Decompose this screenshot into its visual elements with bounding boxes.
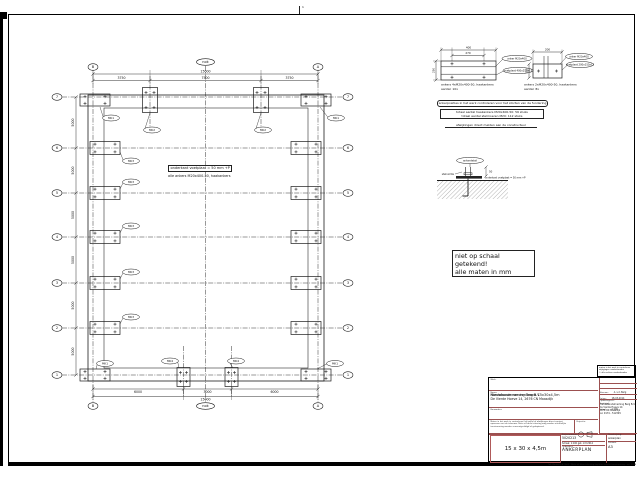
grid-bubble-label: 1 bbox=[56, 373, 58, 377]
grid-bubble-label: 3 bbox=[347, 281, 349, 285]
tb-format-cell: Omschrijving: ankerplan Formaat A3 bbox=[607, 434, 637, 463]
grid-bubble-label: 5 bbox=[347, 191, 349, 195]
tb-project-cell: Projectnummer: 5020213 Schaal: 1:100 get… bbox=[560, 434, 607, 463]
detail-plate bbox=[441, 61, 496, 80]
grid-bubble-label: 1 bbox=[347, 373, 349, 377]
building-inner-outline bbox=[104, 108, 308, 368]
grid-bubble-label: nok bbox=[202, 60, 209, 64]
grid-bubble-label: 2 bbox=[56, 326, 58, 330]
grid-bubble-label: 3 bbox=[56, 281, 58, 285]
tb-onderdeel-value: ANKERPLAN bbox=[562, 448, 605, 453]
detail-callout-label: anker M20x400 bbox=[507, 57, 527, 61]
tb-projection-label: Projectie: bbox=[577, 421, 597, 424]
tb-get-note: get. mrt 2014 bbox=[578, 442, 593, 445]
mark-callout-label: MK1 bbox=[102, 362, 108, 366]
dim-text: 270 bbox=[465, 51, 471, 55]
mark-callout-label: MK3 bbox=[128, 224, 134, 228]
mark-callout-label: MK4 bbox=[167, 359, 173, 363]
mark-callout-label: MK1 bbox=[108, 116, 114, 120]
callout-leader bbox=[317, 364, 328, 370]
ground-note: onderkant voetplaat = 50 mm +P bbox=[485, 176, 526, 179]
dim-text: 5000 bbox=[71, 256, 75, 264]
dim-text: 6000 bbox=[134, 390, 142, 394]
note-total-nuts: totaal aantal stelmoeren M20: 112 stuks bbox=[441, 114, 543, 118]
scale-note-1: niet op schaal getekend! bbox=[455, 252, 532, 268]
mark-callout-label: MK3 bbox=[128, 180, 134, 184]
tb-werk-row: Werk: Nieuwbouw van een loods 15x30x4,5m bbox=[489, 378, 598, 391]
tb-projection-box: Projectie: bbox=[574, 420, 598, 434]
dim-text: 200 bbox=[545, 48, 551, 52]
dim-text: 3750 bbox=[117, 76, 125, 80]
tb-size-box: 15 x 30 x 4,5m bbox=[490, 435, 561, 463]
mark-callout-label: MK3 bbox=[128, 315, 134, 319]
tb-formaat-value: A3 bbox=[608, 445, 636, 449]
tb-schaal-value: 1:100 bbox=[571, 442, 577, 445]
ground-hatch bbox=[437, 181, 508, 199]
tb-size-text: 15 x 30 x 4,5m bbox=[505, 446, 547, 452]
dim-text: 5000 bbox=[71, 166, 75, 174]
dim-text: 7500 bbox=[201, 76, 209, 80]
detail-callout-label: voetplaat 200x150x12 bbox=[566, 63, 595, 67]
dim-text: 3750 bbox=[285, 76, 293, 80]
detail-callout-label: anker M20x400 bbox=[569, 55, 589, 59]
title-block: Werk: Nieuwbouw van een loods 15x30x4,5m… bbox=[488, 377, 636, 462]
anchor-plate bbox=[301, 94, 331, 106]
dim-text: 5000 bbox=[71, 211, 75, 219]
tb-naam-row: Naam: Handelsonderneming Berg B.V. De Vi… bbox=[489, 391, 598, 408]
tb-divider bbox=[599, 378, 600, 434]
dim-text: 5000 bbox=[71, 347, 75, 355]
callout-leader bbox=[455, 172, 462, 174]
note-underlined: afwijkingen direct melden aan de constru… bbox=[445, 123, 537, 129]
dim-text: 6000 bbox=[270, 390, 278, 394]
mark-callout-label: MK2 bbox=[149, 128, 155, 132]
dim-text: 150 bbox=[524, 68, 528, 74]
mark-callout-label: MK2 bbox=[260, 128, 266, 132]
grid-bubble-label: 6 bbox=[56, 146, 58, 150]
titleblock-footer: Tek. Bureau v.d. Stelt · Niets uit deze … bbox=[546, 464, 636, 466]
grid-bubble-label: nok bbox=[202, 404, 209, 408]
dim-text: 5000 bbox=[71, 118, 75, 126]
mark-callout-label: MK3 bbox=[128, 270, 134, 274]
grid-bubble-label: 2 bbox=[347, 326, 349, 330]
scale-note-2: alle maten in mm bbox=[455, 268, 532, 276]
tb-bouwadres-label: Bouwadres: bbox=[491, 409, 597, 412]
dim-text: 50 bbox=[489, 170, 493, 174]
plan-note-boxed: onderkant voetplaat = 50 mm +P bbox=[168, 165, 232, 172]
dim-text: 15000 bbox=[200, 397, 210, 401]
detail-callout-label: ankerdetail bbox=[463, 159, 477, 163]
tb-werk-label: Werk: bbox=[491, 379, 597, 382]
mark-callout-label: MK4 bbox=[233, 359, 239, 363]
plan-note-line: alle ankers M20x400-50, haakankers bbox=[168, 174, 230, 178]
ground-note: stelruimte bbox=[442, 173, 455, 176]
tb-disclaimer: Maten in het werk te controleren; bij tw… bbox=[489, 420, 574, 434]
grid-bubble-label: 5 bbox=[56, 191, 58, 195]
callout-leader bbox=[496, 59, 504, 67]
titleblock-mini-notes: maten in het werk te controleren wijzigi… bbox=[597, 365, 636, 377]
dim-text: 5000 bbox=[71, 301, 75, 309]
detail-caption: aantal: 10x bbox=[441, 87, 458, 91]
mark-callout-label: MK3 bbox=[128, 159, 134, 163]
callout-leader bbox=[100, 107, 104, 118]
note-rounded: ankerposities in het werk controleren vo… bbox=[437, 100, 548, 108]
base-plate-section bbox=[456, 176, 482, 179]
grid-bubble-label: 7 bbox=[347, 95, 349, 99]
tb-naam-line2: De Vierde Hoeve 14, 2676 CN Maasdijk bbox=[491, 398, 597, 402]
tb-client-block: Opdrachtgever: Handelsonderneming Berg B… bbox=[599, 400, 637, 434]
note-totals-box: totaal aantal haakankers M20x400-50: 56 … bbox=[440, 109, 544, 120]
anchor-plate bbox=[80, 94, 110, 106]
dim-text: 3000 bbox=[203, 390, 211, 394]
mark-callout-label: MK1 bbox=[332, 362, 338, 366]
grid-bubble-label: 6 bbox=[347, 146, 349, 150]
mini-note-3: © alle rechten voorbehouden bbox=[599, 372, 634, 375]
dim-text: 250 bbox=[431, 68, 435, 74]
dim-text: 15000 bbox=[200, 69, 210, 73]
dim-text: 400 bbox=[466, 46, 472, 50]
building-outline bbox=[88, 95, 324, 381]
tb-schaal-label: Schaal: bbox=[562, 442, 570, 445]
tb-bouwadres-row: Bouwadres: bbox=[489, 408, 598, 420]
grid-bubble-label: 7 bbox=[56, 95, 58, 99]
detail-caption: aantal: 8x bbox=[524, 87, 539, 91]
tb-client-line4: tel. 0174 - 512345 bbox=[600, 412, 636, 415]
scale-note-box: niet op schaal getekend! alle maten in m… bbox=[452, 250, 535, 277]
mark-callout-label: MK1 bbox=[333, 116, 339, 120]
